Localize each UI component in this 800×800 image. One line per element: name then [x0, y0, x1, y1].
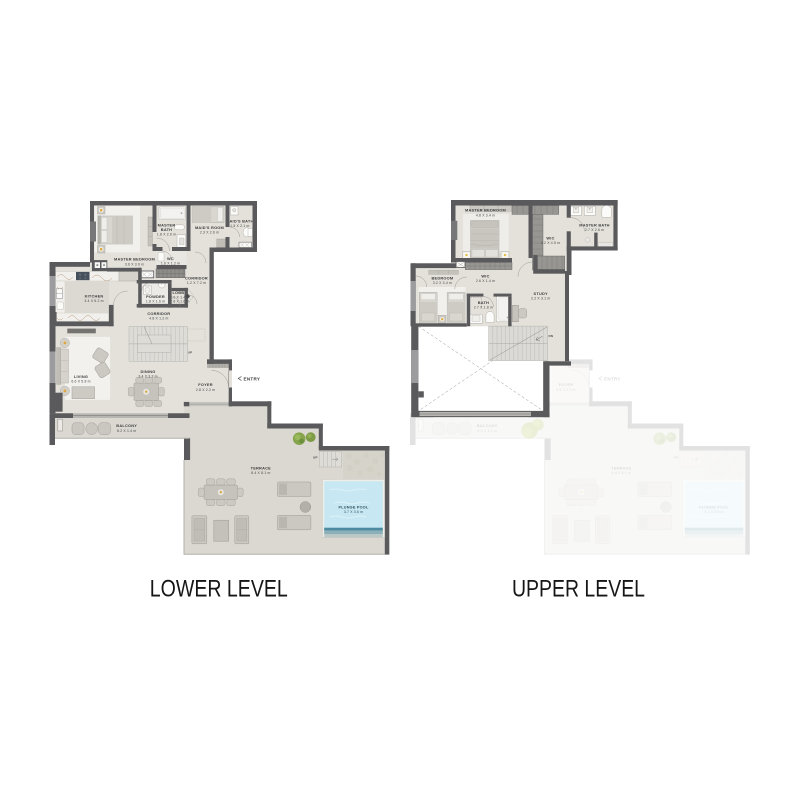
svg-text:2.3 X 2.6 m: 2.3 X 2.6 m	[200, 231, 219, 235]
svg-text:UPPER LEVEL: UPPER LEVEL	[512, 575, 645, 602]
svg-text:3.4 X 5.2 m: 3.4 X 5.2 m	[84, 299, 103, 303]
svg-text:CORRIDOR: CORRIDOR	[147, 311, 170, 316]
svg-text:LOWER LEVEL: LOWER LEVEL	[150, 575, 288, 602]
svg-text:MAID'S ROOM: MAID'S ROOM	[195, 225, 224, 230]
svg-text:BEDROOM: BEDROOM	[431, 275, 453, 280]
svg-text:LIVING: LIVING	[74, 374, 88, 379]
svg-text:WIC: WIC	[481, 273, 489, 278]
svg-text:1.8 X 1.6 m: 1.8 X 1.6 m	[146, 299, 165, 303]
svg-text:DN: DN	[548, 334, 553, 338]
svg-text:BATH: BATH	[161, 227, 172, 232]
svg-text:WIC: WIC	[546, 236, 554, 241]
svg-text:DINING: DINING	[141, 369, 156, 374]
svg-text:3.2 X 3.4 m: 3.2 X 3.4 m	[433, 281, 452, 285]
svg-text:STUDY: STUDY	[534, 291, 548, 296]
svg-text:1.8 X 2.6 m: 1.8 X 2.6 m	[157, 232, 176, 236]
svg-text:UP: UP	[188, 351, 193, 355]
svg-text:MAID'S BATH: MAID'S BATH	[226, 219, 253, 224]
svg-text:4.8 X 1.2 m: 4.8 X 1.2 m	[149, 316, 168, 320]
svg-text:2.7 X 2.6 m: 2.7 X 2.6 m	[585, 228, 604, 232]
svg-text:CORRIDOR: CORRIDOR	[185, 275, 208, 280]
svg-text:3.6 X 3.9 m: 3.6 X 3.9 m	[125, 263, 144, 267]
svg-text:4.8 X 3.4 m: 4.8 X 3.4 m	[476, 213, 495, 217]
svg-text:WC: WC	[167, 256, 174, 261]
svg-text:KITCHEN: KITCHEN	[85, 294, 104, 299]
svg-text:MASTER BEDROOM: MASTER BEDROOM	[465, 208, 506, 213]
svg-text:BATH: BATH	[478, 300, 489, 305]
svg-text:2.6 X 1.4 m: 2.6 X 1.4 m	[476, 279, 495, 283]
svg-text:2.2 X 3.1 m: 2.2 X 3.1 m	[531, 297, 550, 301]
svg-text:2.7 X 1.8 m: 2.7 X 1.8 m	[474, 306, 493, 310]
svg-text:MASTER BEDROOM: MASTER BEDROOM	[114, 257, 155, 262]
svg-text:6.6 X 5.8 m: 6.6 X 5.8 m	[71, 380, 90, 384]
svg-text:1.6 X 1.2 m: 1.6 X 1.2 m	[161, 261, 180, 265]
svg-text:1.2 X 7.2 m: 1.2 X 7.2 m	[187, 281, 206, 285]
svg-text:3.4 X 3.3 m: 3.4 X 3.3 m	[138, 375, 157, 379]
svg-text:2.2 X 4.5 m: 2.2 X 4.5 m	[541, 241, 560, 245]
svg-text:POWDER: POWDER	[146, 294, 165, 299]
